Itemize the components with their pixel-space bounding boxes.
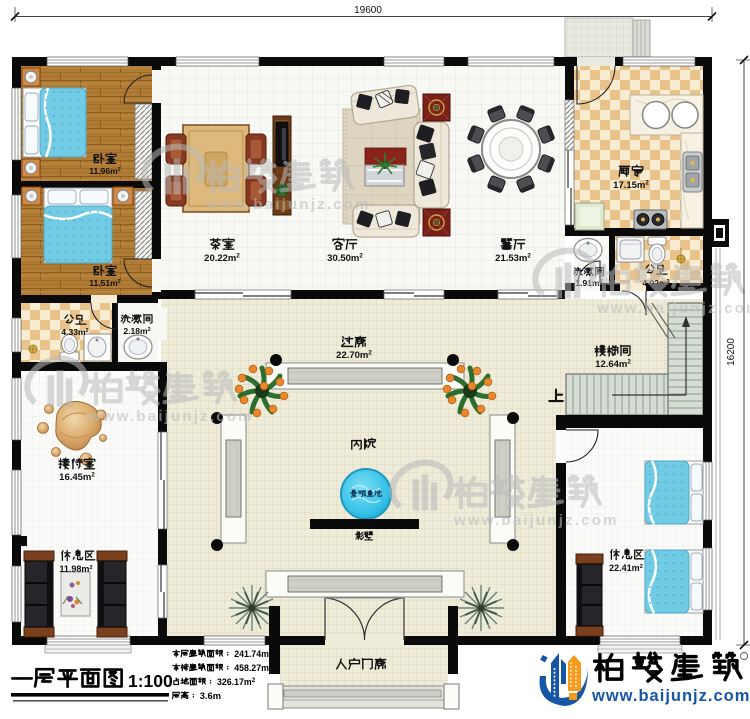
svg-text:458.27m2: 458.27m2 — [234, 663, 273, 673]
svg-text:11.51m2: 11.51m2 — [89, 278, 120, 288]
svg-text:241.74m2: 241.74m2 — [234, 649, 273, 659]
svg-text:19600: 19600 — [354, 5, 382, 16]
svg-text:www.baijunjz.com: www.baijunjz.com — [596, 300, 750, 317]
svg-text:3.6m: 3.6m — [200, 691, 221, 701]
svg-text:326.17m2: 326.17m2 — [217, 677, 256, 687]
svg-text:11.96m2: 11.96m2 — [89, 166, 120, 176]
svg-text:4.33m2: 4.33m2 — [61, 327, 88, 337]
svg-text:12.64m2: 12.64m2 — [595, 359, 631, 370]
svg-text:21.53m2: 21.53m2 — [495, 253, 531, 264]
svg-text:20.22m2: 20.22m2 — [204, 253, 240, 264]
svg-text:22.70m2: 22.70m2 — [336, 350, 372, 361]
svg-text:11.98m2: 11.98m2 — [59, 564, 93, 574]
svg-text:www.baijunjz.com: www.baijunjz.com — [453, 512, 619, 529]
svg-text:16200: 16200 — [726, 338, 737, 366]
svg-text:www.baijunjz.com: www.baijunjz.com — [88, 408, 254, 425]
svg-text:22.41m2: 22.41m2 — [609, 563, 644, 573]
svg-text:www.baijunjz.com: www.baijunjz.com — [591, 687, 750, 705]
svg-text:17.15m2: 17.15m2 — [613, 180, 649, 191]
svg-text:2.18m2: 2.18m2 — [123, 326, 150, 336]
svg-text:www.baijunjz.com: www.baijunjz.com — [205, 196, 371, 213]
svg-text:30.50m2: 30.50m2 — [327, 253, 363, 264]
svg-text:1:100: 1:100 — [128, 671, 173, 691]
svg-text:16.45m2: 16.45m2 — [59, 472, 95, 483]
